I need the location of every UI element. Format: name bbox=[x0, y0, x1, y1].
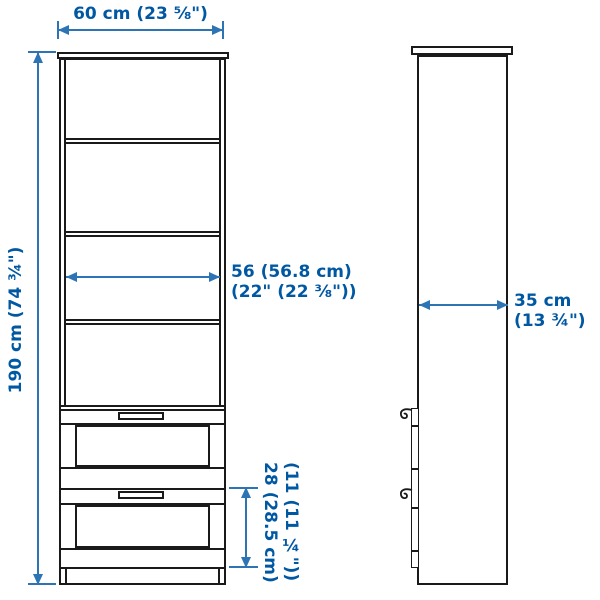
arrowhead-left-icon bbox=[419, 300, 430, 310]
arrowhead-right-icon bbox=[209, 272, 220, 282]
height-dimension-arrow-line bbox=[37, 52, 39, 585]
shelf bbox=[64, 319, 221, 325]
arrowhead-down-icon bbox=[33, 574, 43, 585]
width-dimension-label: 60 cm (23 ⅝") bbox=[58, 4, 223, 24]
inner-width-arrow-line bbox=[66, 276, 220, 278]
side-strip-tick bbox=[411, 507, 419, 509]
side-body bbox=[417, 55, 508, 585]
inner-width-dimension-label: 56 (56.8 cm) (22" (22 ⅜")) bbox=[231, 262, 357, 302]
drawer-dimension-arrow-line bbox=[245, 487, 247, 568]
arrowhead-right-icon bbox=[497, 300, 508, 310]
side-strip-tick bbox=[411, 550, 419, 552]
arrowhead-down-icon bbox=[241, 557, 251, 568]
width-dimension-arrow-line bbox=[58, 29, 223, 31]
drawer-height-label-cm: 28 (28.5 cm) bbox=[259, 462, 280, 583]
drawer1-handle bbox=[118, 412, 164, 420]
side-top-cap bbox=[411, 46, 513, 55]
shelf bbox=[64, 231, 221, 237]
arrowhead-up-icon bbox=[33, 52, 43, 63]
depth-arrow-line bbox=[419, 304, 508, 306]
depth-label-in: (13 ¾") bbox=[514, 311, 586, 331]
drawer-height-label-in: (11 (11 ¼")) bbox=[280, 462, 301, 581]
plinth-foot-left bbox=[65, 567, 67, 584]
drawer1-bottom-line bbox=[60, 467, 225, 469]
drawer-handle-hook-icon bbox=[399, 407, 413, 425]
drawer2-bottom-line bbox=[60, 548, 225, 550]
arrowhead-left-icon bbox=[66, 272, 77, 282]
drawer-handle-hook-icon bbox=[399, 487, 413, 505]
height-dimension-label: 190 cm (74 ¾") bbox=[6, 247, 26, 394]
arrowhead-right-icon bbox=[212, 25, 223, 35]
drawer2-panel bbox=[75, 505, 210, 548]
drawer2-handle bbox=[118, 491, 164, 499]
depth-dimension-label: 35 cm (13 ¾") bbox=[514, 291, 586, 331]
drawer1-rail-top-line bbox=[60, 409, 225, 411]
drawer-height-dimension-label: 28 (28.5 cm) (11 (11 ¼")) bbox=[259, 462, 301, 583]
side-strip-tick bbox=[411, 425, 419, 427]
side-strip-tick bbox=[411, 468, 419, 470]
inner-width-label-in: (22" (22 ⅜")) bbox=[231, 282, 357, 302]
drawer2-rail-top-line bbox=[60, 488, 225, 490]
shelf-area-bottom-line bbox=[60, 405, 225, 407]
arrowhead-up-icon bbox=[241, 487, 251, 498]
shelf bbox=[64, 138, 221, 144]
drawer1-panel bbox=[75, 425, 210, 467]
inner-width-label-cm: 56 (56.8 cm) bbox=[231, 262, 357, 282]
arrowhead-left-icon bbox=[58, 25, 69, 35]
depth-label-cm: 35 cm bbox=[514, 291, 586, 311]
plinth-top-line bbox=[60, 567, 225, 569]
plinth-foot-right bbox=[218, 567, 220, 584]
product-dimension-diagram: 60 cm (23 ⅝") 190 cm (74 ¾") 56 (56.8 cm… bbox=[0, 0, 600, 600]
